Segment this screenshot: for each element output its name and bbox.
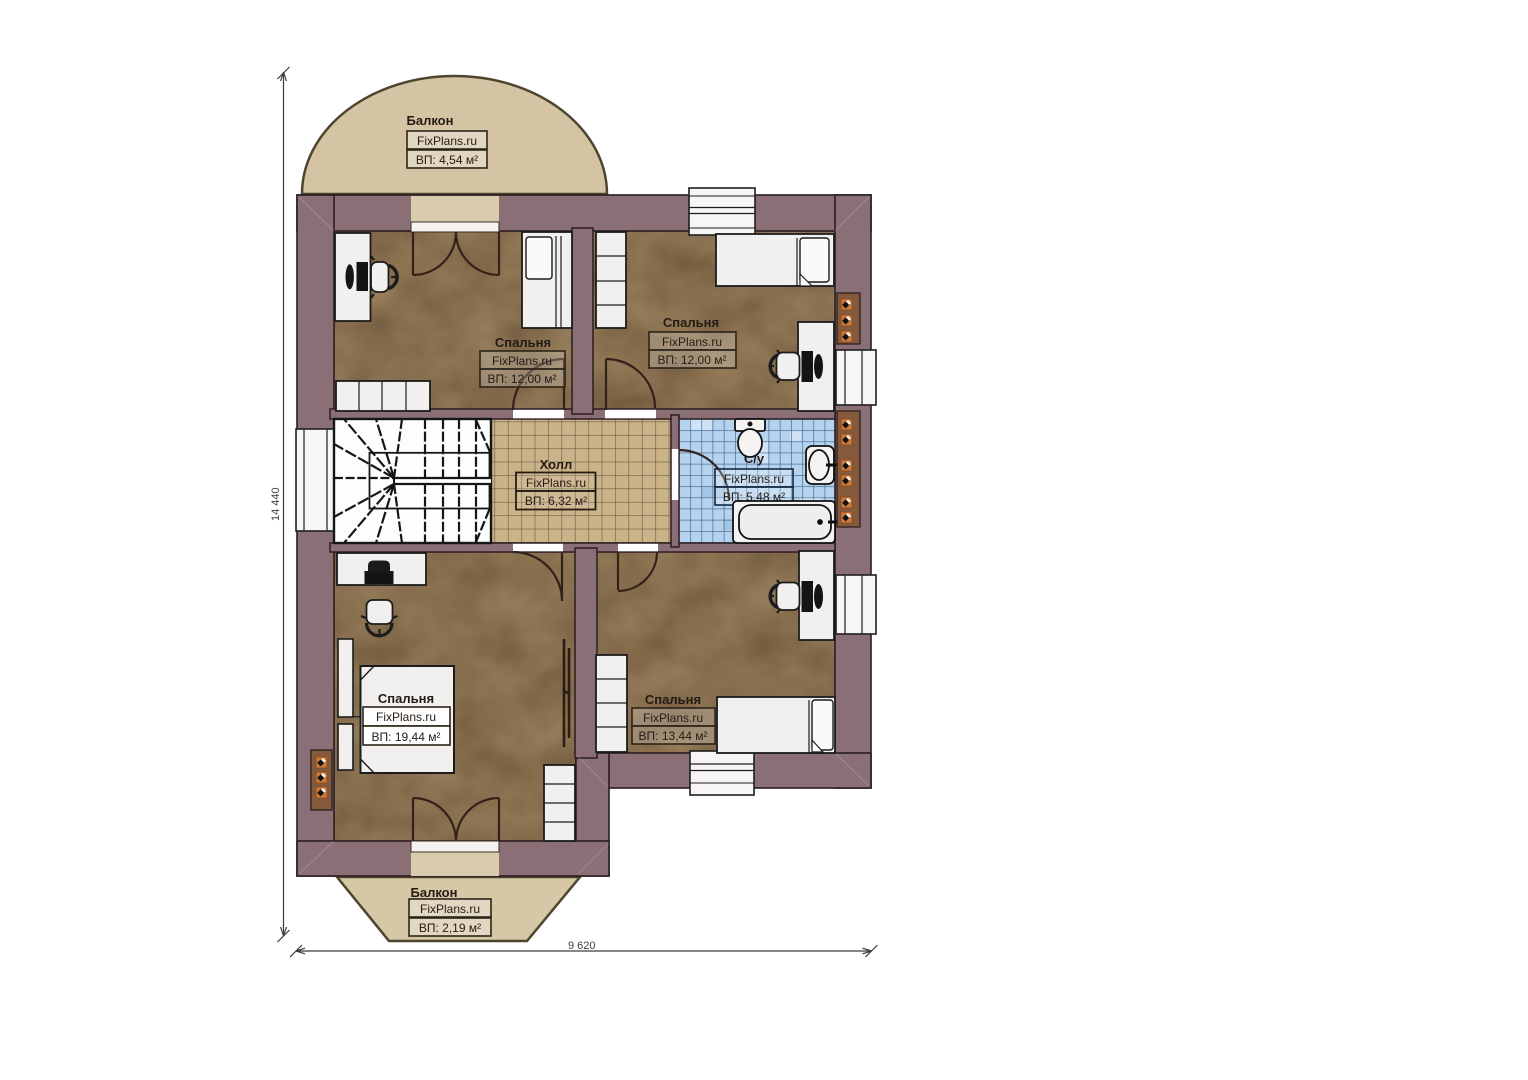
svg-text:Спальня: Спальня <box>645 692 701 707</box>
svg-text:FixPlans.ru: FixPlans.ru <box>420 902 480 916</box>
svg-text:ВП: 4,54 м²: ВП: 4,54 м² <box>416 153 478 167</box>
svg-text:FixPlans.ru: FixPlans.ru <box>526 476 586 490</box>
svg-text:14 440: 14 440 <box>270 487 282 521</box>
svg-text:Балкон: Балкон <box>407 113 454 128</box>
svg-text:ВП: 12,00 м²: ВП: 12,00 м² <box>488 372 557 386</box>
svg-text:FixPlans.ru: FixPlans.ru <box>724 472 784 486</box>
svg-text:ВП: 6,32 м²: ВП: 6,32 м² <box>525 494 587 508</box>
svg-text:ВП: 13,44 м²: ВП: 13,44 м² <box>639 729 708 743</box>
svg-text:ВП: 19,44 м²: ВП: 19,44 м² <box>372 730 441 744</box>
svg-text:FixPlans.ru: FixPlans.ru <box>417 134 477 148</box>
svg-text:Спальня: Спальня <box>495 335 551 350</box>
svg-text:ВП: 12,00 м²: ВП: 12,00 м² <box>658 353 727 367</box>
svg-text:FixPlans.ru: FixPlans.ru <box>376 710 436 724</box>
svg-text:FixPlans.ru: FixPlans.ru <box>643 711 703 725</box>
svg-text:9 620: 9 620 <box>568 940 596 952</box>
svg-text:Спальня: Спальня <box>378 691 434 706</box>
svg-text:FixPlans.ru: FixPlans.ru <box>662 335 722 349</box>
svg-text:Балкон: Балкон <box>411 885 458 900</box>
svg-text:ВП: 2,19 м²: ВП: 2,19 м² <box>419 921 481 935</box>
svg-text:FixPlans.ru: FixPlans.ru <box>492 354 552 368</box>
svg-text:Спальня: Спальня <box>663 315 719 330</box>
svg-text:Холл: Холл <box>540 457 573 472</box>
